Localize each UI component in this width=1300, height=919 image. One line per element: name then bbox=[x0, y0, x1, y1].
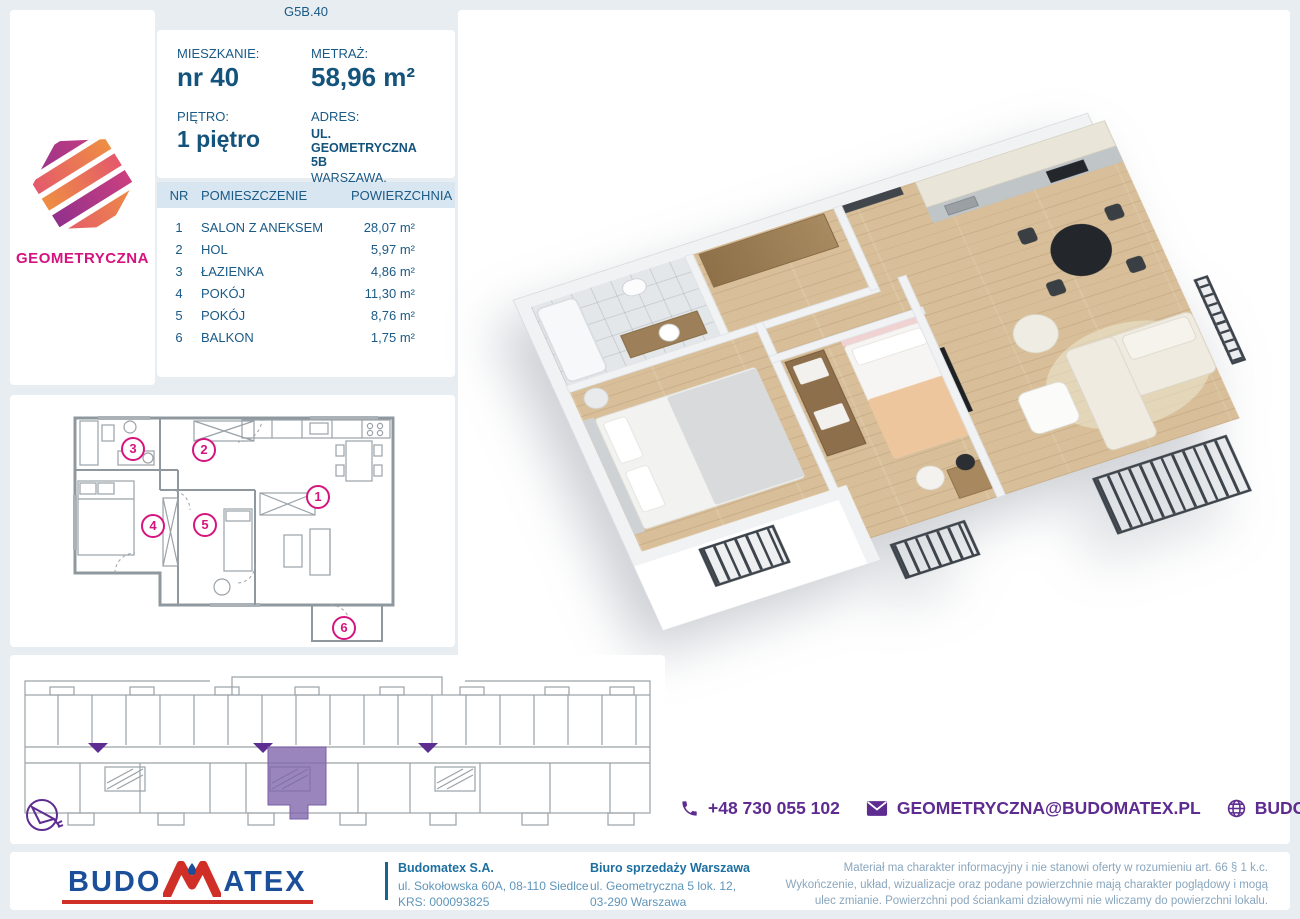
legal-disclaimer: Materiał ma charakter informacyjny i nie… bbox=[782, 860, 1268, 910]
balcony-small-middle bbox=[889, 520, 980, 579]
building-plan-drawing bbox=[10, 655, 665, 844]
envelope-icon bbox=[866, 800, 888, 817]
address-street: UL. GEOMETRYCZNA 5B bbox=[311, 127, 435, 169]
col-name: POMIESZCZENIE bbox=[201, 188, 351, 203]
office-address1: ul. Geometryczna 5 lok. 12, bbox=[590, 878, 750, 895]
room-badge-3: 3 bbox=[121, 437, 145, 461]
row-nr: 5 bbox=[157, 308, 201, 323]
area-label: METRAŻ: bbox=[311, 46, 435, 61]
row-area: 11,30 m² bbox=[351, 286, 435, 301]
row-area: 4,86 m² bbox=[351, 264, 435, 279]
row-area: 28,07 m² bbox=[351, 220, 435, 235]
floor-label: PIĘTRO: bbox=[177, 109, 311, 124]
row-nr: 2 bbox=[157, 242, 201, 257]
row-name: HOL bbox=[201, 242, 351, 257]
footer-divider bbox=[385, 862, 388, 900]
col-area: POWIERZCHNIA bbox=[351, 188, 455, 203]
col-nr: NR bbox=[157, 188, 201, 203]
geometryczna-logo-icon bbox=[27, 128, 139, 240]
floor-value: 1 piętro bbox=[177, 127, 311, 152]
row-name: ŁAZIENKA bbox=[201, 264, 351, 279]
row-name: BALKON bbox=[201, 330, 351, 345]
room-badge-6: 6 bbox=[332, 616, 356, 640]
budomatex-logo-text2: ATEX bbox=[223, 869, 306, 897]
developer-logo-card: GEOMETRYCZNA bbox=[10, 10, 155, 385]
address-label: ADRES: bbox=[311, 109, 435, 124]
row-name: SALON Z ANEKSEM bbox=[201, 220, 351, 235]
table-row: 3 ŁAZIENKA 4,86 m² bbox=[157, 260, 455, 282]
row-nr: 3 bbox=[157, 264, 201, 279]
sales-office-info: Biuro sprzedaży Warszawa ul. Geometryczn… bbox=[590, 860, 750, 911]
room-badge-4: 4 bbox=[141, 514, 165, 538]
row-nr: 1 bbox=[157, 220, 201, 235]
contact-bar: +48 730 055 102 GEOMETRYCZNA@BUDOMATEX.P… bbox=[680, 798, 1300, 819]
company-address: ul. Sokołowska 60A, 08-110 Siedlce bbox=[398, 878, 589, 895]
room-badge-2: 2 bbox=[192, 438, 216, 462]
footer-bar: BUDO ATEX Budomatex S.A. ul. Sokołowska … bbox=[10, 852, 1290, 910]
website-link[interactable]: BUDOMATEX.PL bbox=[1227, 798, 1300, 819]
office-address2: 03-290 Warszawa bbox=[590, 894, 750, 911]
table-row: 6 BALKON 1,75 m² bbox=[157, 326, 455, 348]
apartment-plan-3d bbox=[514, 114, 1222, 599]
rooms-table-header: NR POMIESZCZENIE POWIERZCHNIA bbox=[157, 182, 455, 208]
apartment-label: MIESZKANIE: bbox=[177, 46, 311, 61]
phone-number: +48 730 055 102 bbox=[708, 798, 840, 819]
office-name: Biuro sprzedaży Warszawa bbox=[590, 860, 750, 878]
email-address: GEOMETRYCZNA@BUDOMATEX.PL bbox=[897, 798, 1201, 819]
floor-plan-2d-drawing bbox=[10, 395, 455, 647]
highlighted-unit bbox=[268, 747, 326, 819]
website-url: BUDOMATEX.PL bbox=[1255, 798, 1300, 819]
floor-plan-2d: 3 2 1 4 5 6 bbox=[10, 395, 455, 647]
table-row: 4 POKÓJ 11,30 m² bbox=[157, 282, 455, 304]
render-scene bbox=[458, 10, 1290, 750]
table-row: 5 POKÓJ 8,76 m² bbox=[157, 304, 455, 326]
phone-link[interactable]: +48 730 055 102 bbox=[680, 798, 840, 819]
apartment-number: nr 40 bbox=[177, 64, 311, 91]
table-row: 2 HOL 5,97 m² bbox=[157, 238, 455, 260]
compass-icon bbox=[27, 800, 63, 830]
unit-code: G5B.40 bbox=[157, 4, 455, 19]
building-plan-card bbox=[10, 655, 665, 844]
company-name: Budomatex S.A. bbox=[398, 860, 589, 878]
row-area: 1,75 m² bbox=[351, 330, 435, 345]
rooms-table: NR POMIESZCZENIE POWIERZCHNIA 1 SALON Z … bbox=[157, 182, 455, 377]
room-badge-1: 1 bbox=[306, 485, 330, 509]
budomatex-logo-text1: BUDO bbox=[68, 869, 161, 897]
budomatex-logo: BUDO ATEX bbox=[62, 861, 313, 904]
row-nr: 4 bbox=[157, 286, 201, 301]
project-name: GEOMETRYCZNA bbox=[10, 250, 155, 267]
globe-icon bbox=[1227, 799, 1246, 818]
area-value: 58,96 m² bbox=[311, 64, 435, 91]
company-info: Budomatex S.A. ul. Sokołowska 60A, 08-11… bbox=[398, 860, 589, 911]
row-name: POKÓJ bbox=[201, 308, 351, 323]
row-nr: 6 bbox=[157, 330, 201, 345]
room-badge-5: 5 bbox=[193, 513, 217, 537]
apartment-info-card: MIESZKANIE: nr 40 METRAŻ: 58,96 m² PIĘTR… bbox=[157, 30, 455, 178]
budomatex-logo-m-icon bbox=[163, 861, 221, 897]
table-row: 1 SALON Z ANEKSEM 28,07 m² bbox=[157, 216, 455, 238]
phone-icon bbox=[680, 799, 699, 818]
row-area: 8,76 m² bbox=[351, 308, 435, 323]
row-area: 5,97 m² bbox=[351, 242, 435, 257]
company-krs: KRS: 000093825 bbox=[398, 894, 589, 911]
email-link[interactable]: GEOMETRYCZNA@BUDOMATEX.PL bbox=[866, 798, 1201, 819]
row-name: POKÓJ bbox=[201, 286, 351, 301]
